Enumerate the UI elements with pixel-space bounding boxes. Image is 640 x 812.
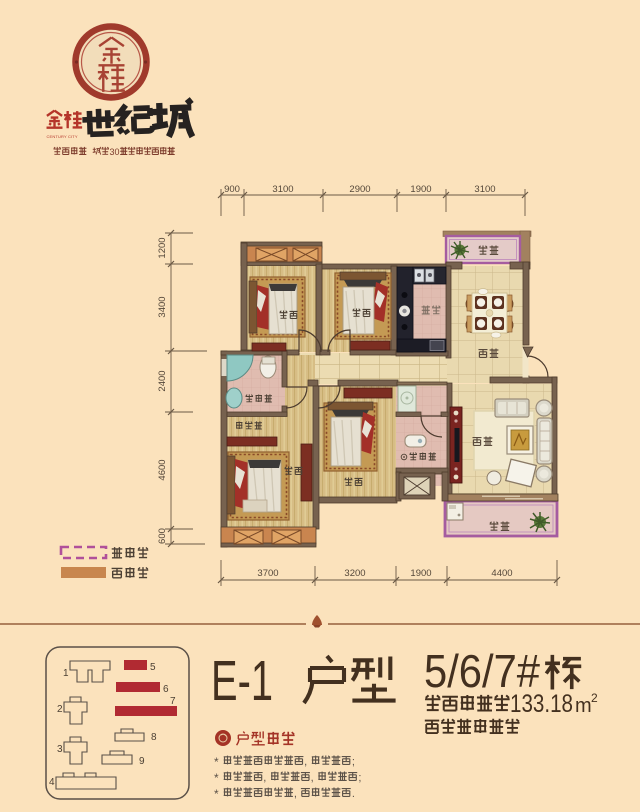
- svg-text:8: 8: [151, 732, 157, 743]
- svg-text:CENTURY CITY: CENTURY CITY: [47, 134, 78, 139]
- svg-text:,: ,: [311, 772, 314, 784]
- svg-text:1900: 1900: [410, 184, 431, 195]
- svg-text:2400: 2400: [157, 370, 168, 391]
- svg-text:30: 30: [110, 147, 120, 157]
- svg-text:4600: 4600: [157, 459, 168, 480]
- svg-text:3100: 3100: [272, 184, 293, 195]
- svg-text:4400: 4400: [491, 568, 512, 579]
- svg-text:*: *: [214, 755, 219, 769]
- svg-text:E-1: E-1: [211, 649, 273, 713]
- svg-text:1: 1: [63, 668, 69, 679]
- svg-text:2900: 2900: [349, 184, 370, 195]
- svg-text:4: 4: [49, 777, 55, 788]
- svg-text:,: ,: [294, 788, 297, 800]
- svg-text:2: 2: [591, 691, 598, 705]
- svg-text:1900: 1900: [410, 568, 431, 579]
- svg-text:3: 3: [57, 744, 63, 755]
- svg-text:*: *: [214, 787, 219, 801]
- svg-text:m: m: [575, 695, 592, 717]
- svg-text:7: 7: [170, 696, 176, 707]
- svg-text:;: ;: [352, 756, 355, 768]
- svg-text:,: ,: [263, 772, 266, 784]
- svg-text:6: 6: [163, 684, 169, 695]
- svg-text:;: ;: [358, 772, 361, 784]
- svg-text:3400: 3400: [157, 296, 168, 317]
- svg-text:3100: 3100: [474, 184, 495, 195]
- svg-text:3200: 3200: [344, 568, 365, 579]
- svg-text:1200: 1200: [157, 237, 168, 258]
- svg-text:5: 5: [150, 662, 156, 673]
- svg-text:*: *: [214, 771, 219, 785]
- svg-text:9: 9: [139, 756, 145, 767]
- svg-text:,: ,: [304, 756, 307, 768]
- svg-text:2: 2: [57, 704, 63, 715]
- svg-text:600: 600: [157, 528, 168, 544]
- svg-text:900: 900: [224, 184, 240, 195]
- svg-text:133.18: 133.18: [510, 690, 573, 718]
- svg-text:3700: 3700: [257, 568, 278, 579]
- svg-text:.: .: [352, 788, 355, 800]
